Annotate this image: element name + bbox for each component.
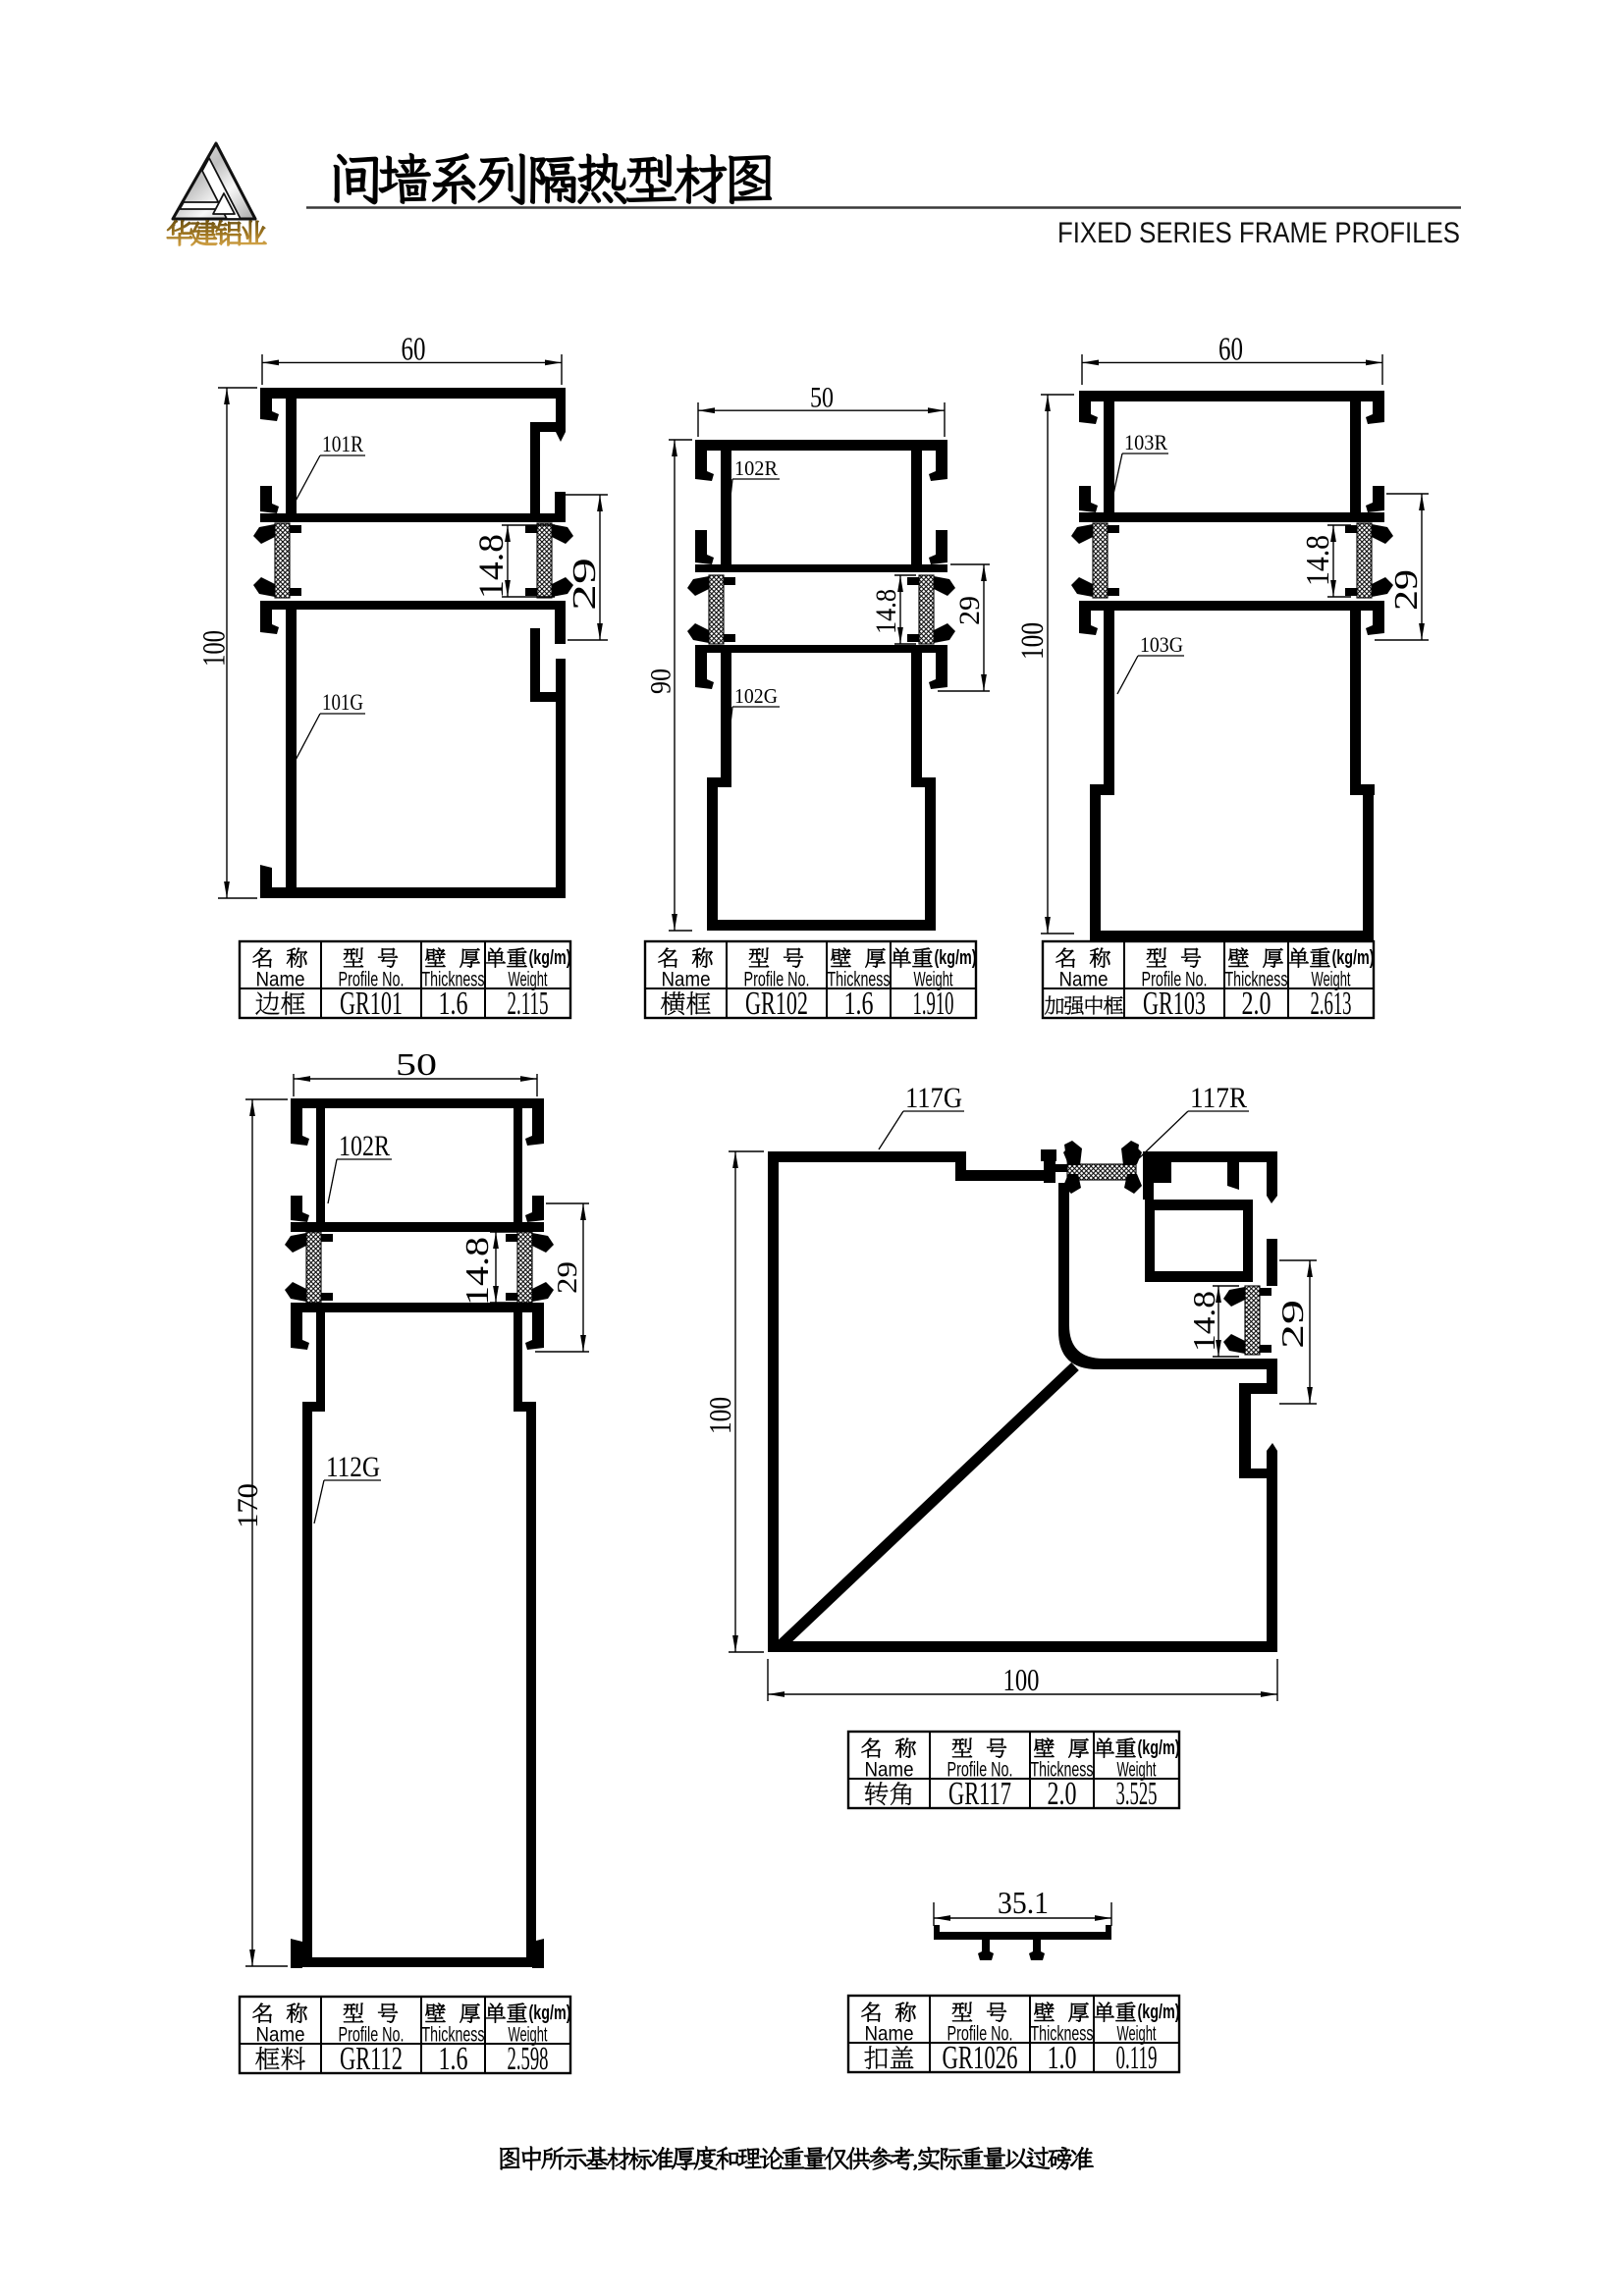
svg-text:Name: Name bbox=[865, 2022, 914, 2046]
svg-text:(kg/m): (kg/m) bbox=[529, 2002, 571, 2024]
svg-text:100: 100 bbox=[1003, 1662, 1040, 1697]
svg-text:GR102: GR102 bbox=[745, 986, 808, 1022]
svg-text:(kg/m): (kg/m) bbox=[529, 947, 571, 969]
svg-text:1.6: 1.6 bbox=[439, 2041, 468, 2077]
svg-text:1.6: 1.6 bbox=[844, 986, 874, 1022]
svg-text:2.598: 2.598 bbox=[508, 2041, 549, 2077]
svg-text:GR103: GR103 bbox=[1143, 986, 1206, 1022]
svg-text:60: 60 bbox=[402, 332, 426, 368]
svg-text:50: 50 bbox=[810, 382, 834, 414]
svg-text:Name: Name bbox=[256, 968, 305, 991]
svg-text:100: 100 bbox=[1015, 622, 1051, 660]
svg-text:101G: 101G bbox=[322, 690, 363, 715]
svg-text:14.8: 14.8 bbox=[870, 589, 902, 634]
svg-text:Name: Name bbox=[865, 1758, 914, 1782]
svg-text:(kg/m): (kg/m) bbox=[1138, 1737, 1180, 1759]
svg-text:100: 100 bbox=[702, 1397, 737, 1434]
svg-text:1.910: 1.910 bbox=[913, 986, 954, 1022]
svg-text:35.1: 35.1 bbox=[998, 1885, 1049, 1920]
svg-text:102R: 102R bbox=[734, 456, 778, 480]
svg-text:FIXED SERIES FRAME PROFILES: FIXED SERIES FRAME PROFILES bbox=[1057, 217, 1460, 249]
svg-text:1.0: 1.0 bbox=[1048, 2040, 1077, 2076]
svg-text:29: 29 bbox=[552, 1261, 583, 1294]
svg-text:60: 60 bbox=[1218, 332, 1243, 368]
svg-text:2.115: 2.115 bbox=[508, 986, 549, 1022]
svg-text:29: 29 bbox=[953, 596, 986, 625]
svg-text:102R: 102R bbox=[339, 1130, 390, 1162]
svg-text:1.6: 1.6 bbox=[439, 986, 468, 1022]
svg-text:170: 170 bbox=[232, 1483, 264, 1528]
svg-text:14.8: 14.8 bbox=[471, 534, 511, 599]
svg-text:29: 29 bbox=[567, 558, 603, 611]
svg-text:14.8: 14.8 bbox=[1186, 1291, 1221, 1352]
svg-text:GR101: GR101 bbox=[340, 986, 403, 1022]
svg-text:3.525: 3.525 bbox=[1116, 1776, 1158, 1812]
svg-text:GR1026: GR1026 bbox=[943, 2040, 1018, 2076]
svg-text:103G: 103G bbox=[1140, 632, 1183, 657]
svg-text:14.8: 14.8 bbox=[1300, 535, 1336, 586]
svg-text:50: 50 bbox=[396, 1046, 437, 1082]
svg-text:GR117: GR117 bbox=[948, 1776, 1011, 1812]
svg-text:(kg/m): (kg/m) bbox=[1138, 2002, 1180, 2023]
svg-text:102G: 102G bbox=[734, 684, 778, 708]
svg-text:2.0: 2.0 bbox=[1242, 986, 1271, 1022]
svg-text:29: 29 bbox=[1388, 569, 1425, 611]
svg-text:90: 90 bbox=[645, 668, 677, 694]
svg-text:101R: 101R bbox=[322, 432, 364, 456]
svg-text:14.8: 14.8 bbox=[460, 1237, 496, 1306]
svg-text:(kg/m): (kg/m) bbox=[935, 947, 977, 969]
svg-text:117R: 117R bbox=[1190, 1082, 1247, 1114]
svg-text:Name: Name bbox=[662, 968, 711, 991]
svg-text:Name: Name bbox=[256, 2023, 305, 2047]
svg-text:GR112: GR112 bbox=[340, 2041, 403, 2077]
svg-text:100: 100 bbox=[197, 630, 233, 667]
svg-text:29: 29 bbox=[1274, 1300, 1310, 1349]
svg-text:117G: 117G bbox=[905, 1082, 962, 1114]
svg-text:103R: 103R bbox=[1124, 430, 1167, 454]
svg-text:Name: Name bbox=[1059, 968, 1109, 991]
svg-text:2.0: 2.0 bbox=[1048, 1776, 1077, 1812]
svg-text:0.119: 0.119 bbox=[1116, 2040, 1158, 2076]
svg-text:2.613: 2.613 bbox=[1311, 986, 1352, 1022]
svg-text:112G: 112G bbox=[326, 1451, 380, 1483]
svg-text:(kg/m): (kg/m) bbox=[1332, 947, 1375, 969]
